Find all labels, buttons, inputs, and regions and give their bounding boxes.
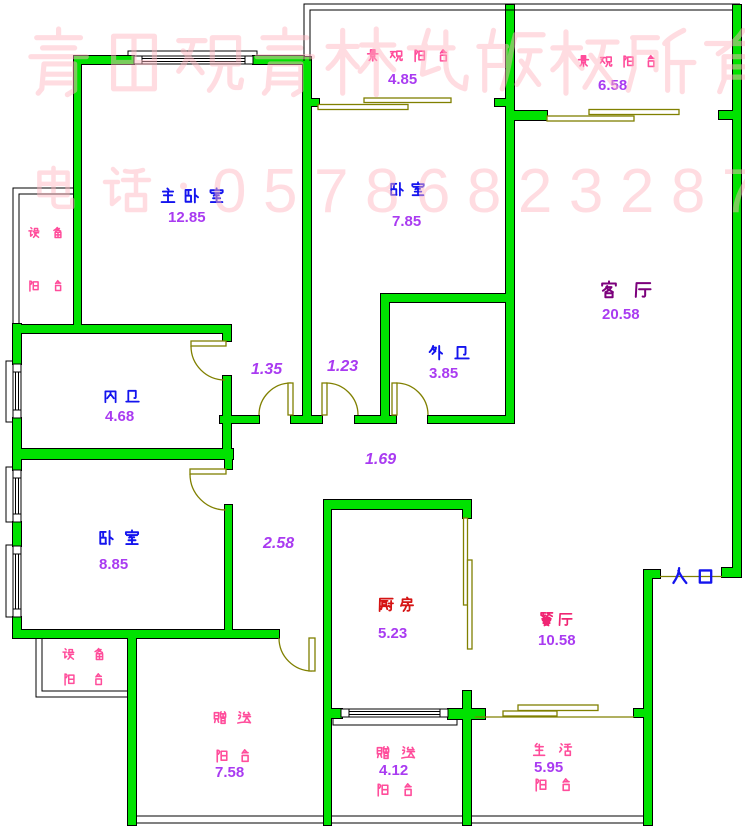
svg-text:2.58: 2.58	[262, 535, 294, 552]
svg-text:12.85: 12.85	[168, 209, 206, 226]
svg-text:1.69: 1.69	[365, 451, 396, 468]
svg-text:20.58: 20.58	[602, 306, 640, 323]
svg-text:4.85: 4.85	[388, 71, 417, 88]
svg-text:5.95: 5.95	[534, 759, 563, 776]
svg-text:10.58: 10.58	[538, 632, 576, 649]
svg-text:4.68: 4.68	[105, 408, 134, 425]
svg-text:3.85: 3.85	[429, 365, 458, 382]
svg-text:5.23: 5.23	[378, 625, 407, 642]
svg-text:4.12: 4.12	[379, 762, 408, 779]
svg-text:1.23: 1.23	[327, 358, 358, 375]
svg-text:7.58: 7.58	[215, 764, 244, 781]
svg-text:8.85: 8.85	[99, 556, 128, 573]
svg-text:05786823287: 05786823287	[212, 157, 745, 226]
svg-text:1.35: 1.35	[251, 361, 283, 378]
